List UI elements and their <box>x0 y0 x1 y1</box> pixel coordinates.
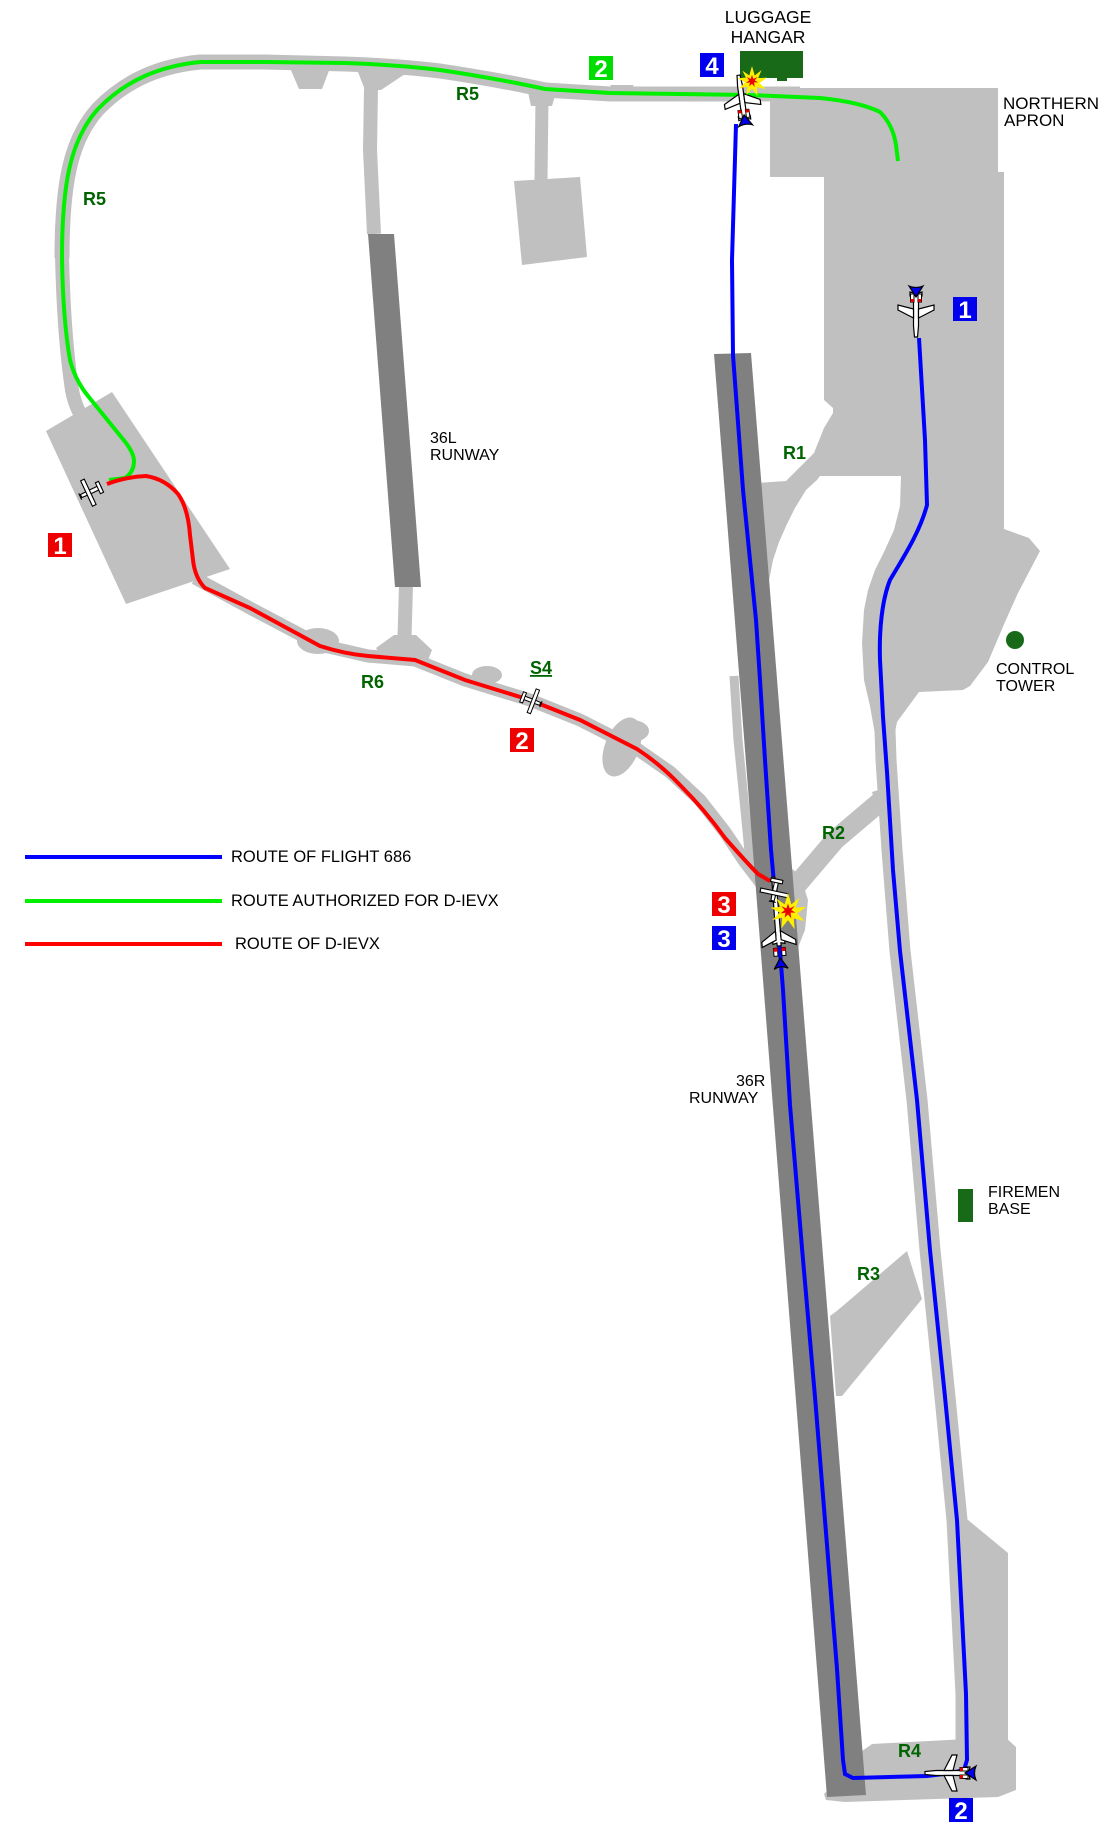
svg-text:ROUTE OF D-IEVX: ROUTE OF D-IEVX <box>235 935 380 953</box>
svg-text:ROUTE AUTHORIZED FOR D-IEVX: ROUTE AUTHORIZED FOR D-IEVX <box>231 892 499 910</box>
svg-text:R2: R2 <box>822 823 845 843</box>
svg-text:CONTROL: CONTROL <box>996 661 1074 678</box>
svg-text:S4: S4 <box>530 658 552 678</box>
svg-text:TOWER: TOWER <box>996 678 1055 695</box>
svg-text:3: 3 <box>717 892 730 919</box>
svg-text:APRON: APRON <box>1004 111 1064 130</box>
svg-text:2: 2 <box>954 1798 967 1825</box>
svg-text:LUGGAGE: LUGGAGE <box>725 7 812 27</box>
svg-text:2: 2 <box>515 728 528 755</box>
svg-text:BASE: BASE <box>988 1201 1031 1218</box>
svg-text:R1: R1 <box>783 443 806 463</box>
svg-text:ROUTE OF FLIGHT 686: ROUTE OF FLIGHT 686 <box>231 848 411 866</box>
svg-text:R4: R4 <box>898 1741 921 1761</box>
svg-text:36L: 36L <box>430 430 457 447</box>
svg-text:R5: R5 <box>456 84 479 104</box>
svg-text:FIREMEN: FIREMEN <box>988 1184 1060 1201</box>
svg-text:36R: 36R <box>736 1073 765 1090</box>
svg-text:1: 1 <box>53 533 66 560</box>
svg-text:RUNWAY: RUNWAY <box>430 447 500 464</box>
svg-text:R6: R6 <box>361 672 384 692</box>
svg-text:RUNWAY: RUNWAY <box>689 1090 759 1107</box>
svg-text:4: 4 <box>705 53 719 80</box>
svg-text:2: 2 <box>594 56 607 83</box>
svg-text:R3: R3 <box>857 1264 880 1284</box>
svg-text:R5: R5 <box>83 189 106 209</box>
svg-text:3: 3 <box>717 926 730 953</box>
svg-text:1: 1 <box>958 297 971 324</box>
svg-text:HANGAR: HANGAR <box>731 27 806 47</box>
